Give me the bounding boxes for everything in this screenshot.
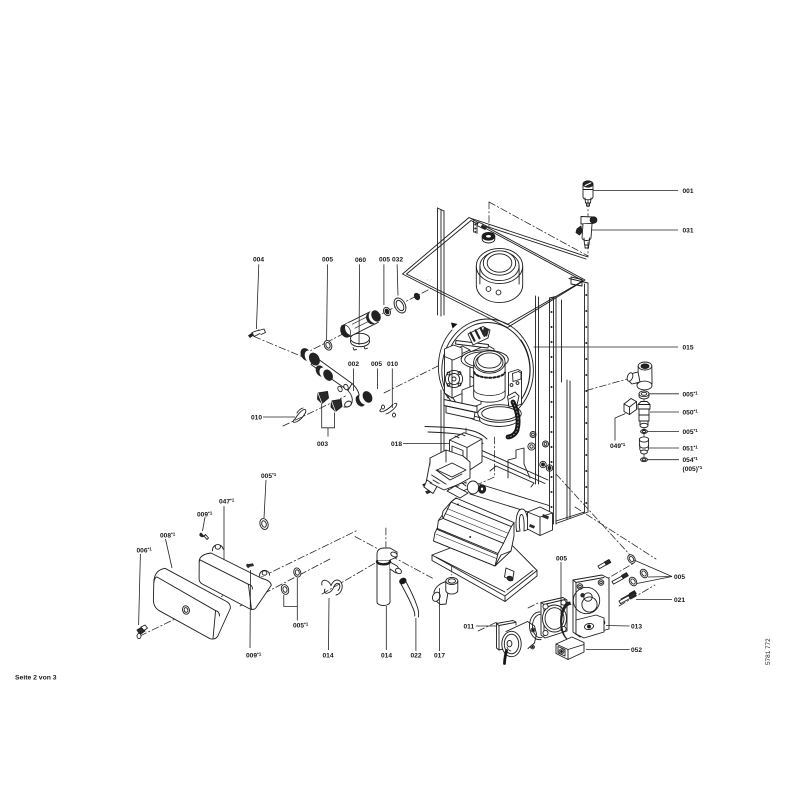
svg-text:054*1: 054*1 <box>683 456 699 464</box>
svg-text:001: 001 <box>683 188 694 195</box>
svg-text:(005)*1: (005)*1 <box>683 465 703 473</box>
svg-text:005: 005 <box>379 257 390 264</box>
svg-text:022: 022 <box>411 653 422 660</box>
svg-text:005: 005 <box>556 556 567 563</box>
svg-text:005*1: 005*1 <box>293 622 309 630</box>
svg-text:Seite 2 von 3: Seite 2 von 3 <box>15 675 57 682</box>
svg-text:017: 017 <box>434 653 445 660</box>
svg-text:004: 004 <box>253 257 264 264</box>
svg-text:018: 018 <box>391 441 402 448</box>
svg-text:032: 032 <box>392 257 403 264</box>
svg-text:002: 002 <box>348 361 359 368</box>
svg-text:010: 010 <box>251 415 262 422</box>
svg-text:060: 060 <box>355 257 366 264</box>
svg-text:5781 772: 5781 772 <box>765 638 772 665</box>
svg-text:011: 011 <box>464 624 475 631</box>
svg-text:015: 015 <box>683 345 694 352</box>
svg-text:052: 052 <box>631 647 642 654</box>
svg-text:009*1: 009*1 <box>246 652 262 660</box>
svg-text:005*1: 005*1 <box>683 390 699 398</box>
svg-text:014: 014 <box>323 653 334 660</box>
svg-text:009*1: 009*1 <box>197 511 213 519</box>
svg-text:005: 005 <box>674 574 685 581</box>
svg-text:003: 003 <box>317 441 328 448</box>
svg-text:049*1: 049*1 <box>610 442 626 450</box>
svg-text:008*1: 008*1 <box>160 532 176 540</box>
svg-text:031: 031 <box>683 228 694 235</box>
svg-text:014: 014 <box>381 653 392 660</box>
svg-text:010: 010 <box>387 361 398 368</box>
svg-text:021: 021 <box>674 597 685 604</box>
svg-text:047*1: 047*1 <box>219 498 235 506</box>
svg-text:051*1: 051*1 <box>683 445 699 453</box>
svg-text:005*1: 005*1 <box>261 472 277 480</box>
svg-text:005: 005 <box>371 361 382 368</box>
svg-text:050*1: 050*1 <box>683 409 699 417</box>
svg-text:013: 013 <box>631 624 642 631</box>
svg-text:006*1: 006*1 <box>137 547 153 555</box>
svg-text:005: 005 <box>322 257 333 264</box>
svg-text:005*1: 005*1 <box>683 428 699 436</box>
